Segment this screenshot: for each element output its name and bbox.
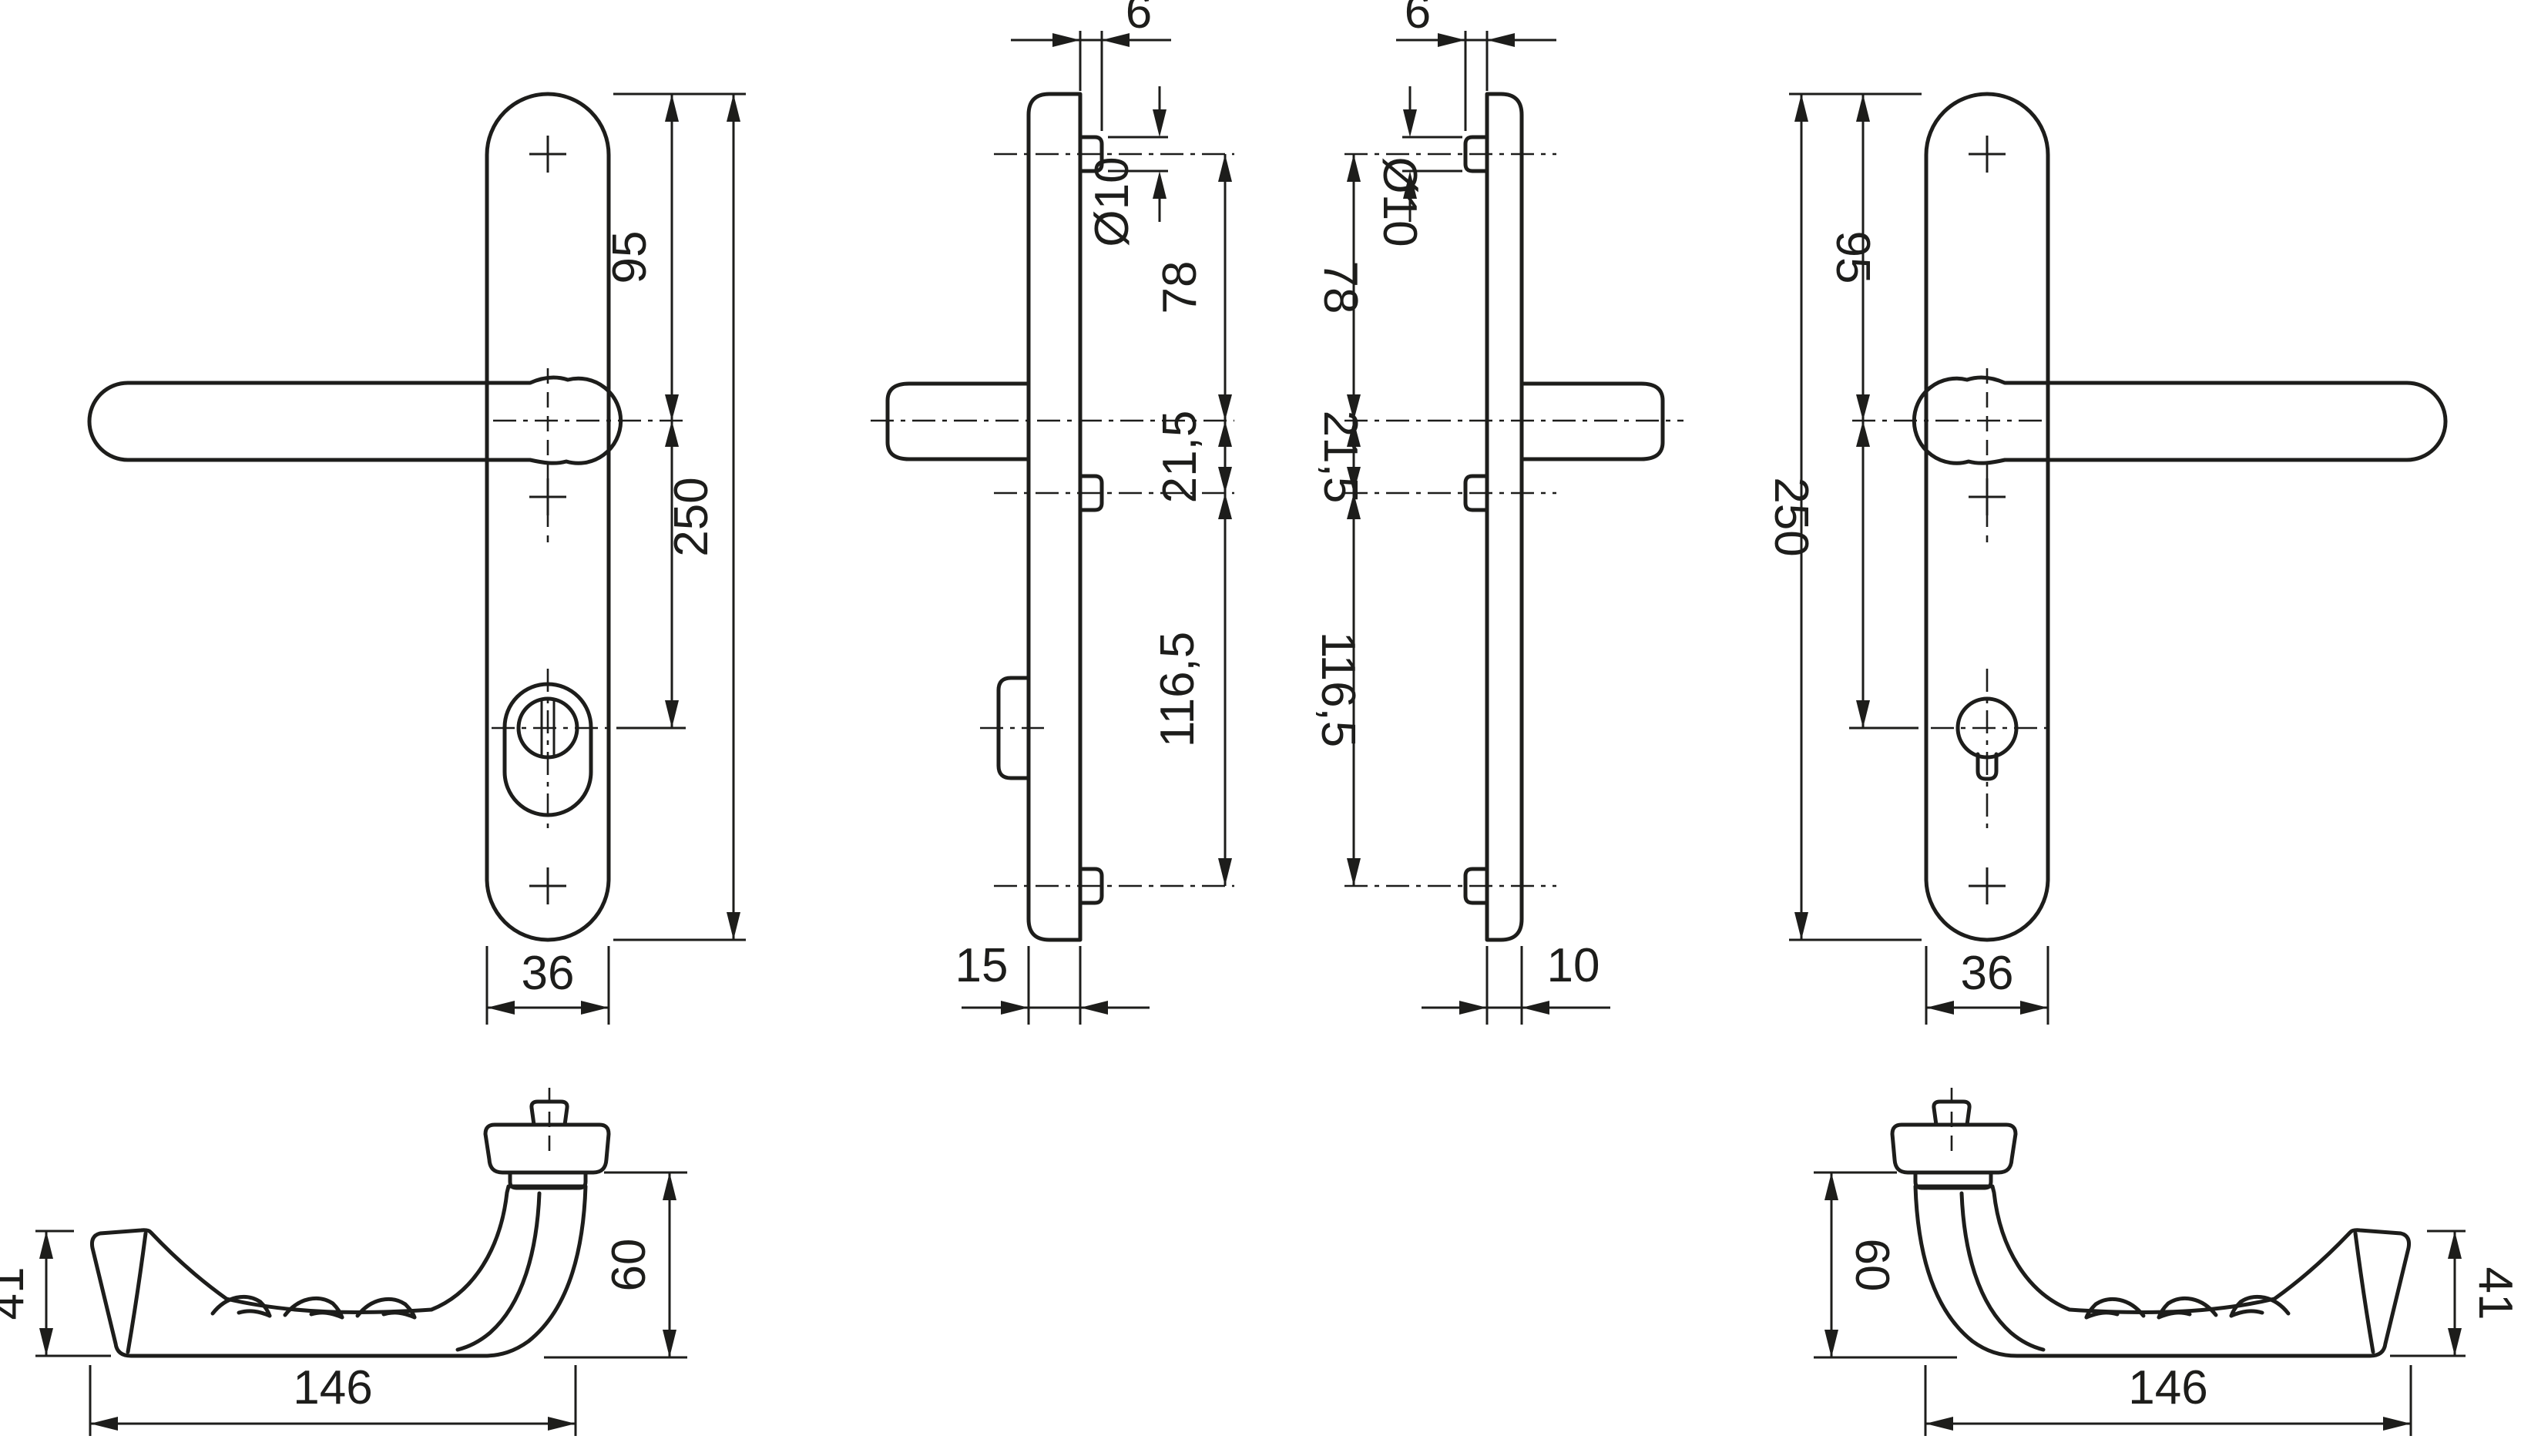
dim-60-label: 60 [1845,1239,1898,1292]
dim-10-label: 10 [1547,939,1600,992]
dim-6-graphics [1396,31,1556,131]
rose-cap [485,1125,609,1173]
dim-41-label: 41 [0,1267,34,1320]
dim-15-label: 15 [955,939,1009,992]
oval-cylinder [492,669,616,830]
view-side-15: 6 Ø10 78 21,5 116,5 15 [871,0,1234,1025]
neck-inner-line [458,1193,539,1350]
handle-grip-outline [92,1186,586,1356]
view-handle-left: 41 60 146 [0,1088,687,1436]
dim-95-label: 95 [603,231,656,284]
dim-146-label: 146 [293,1361,372,1414]
dim-dia10-label: Ø10 [1373,156,1426,247]
dim-116-5-label: 116,5 [1311,632,1365,748]
dim-36-label: 36 [522,947,575,1000]
plate-profile-10 [1487,94,1522,940]
plate-profile-15 [1029,94,1080,940]
drawing-page: 95 250 36 [0,0,2521,1456]
dim-dia10-label: Ø10 [1086,156,1139,247]
dim-116-5-label: 116,5 [1151,632,1204,748]
centerlines [1344,154,1683,886]
grip-scallops [213,1297,415,1317]
dim-6-label: 6 [1405,0,1431,39]
dim-78-label: 78 [1153,261,1207,314]
dim-6-graphics [1011,31,1171,131]
view-side-10: 6 Ø10 78 21,5 116,5 10 [1311,0,1683,1025]
fixing-lugs [1465,137,1487,903]
dim-21-5-label: 21,5 [1314,411,1367,504]
euro-profile-cylinder [1931,669,2056,830]
dim-95-label: 95 [1826,231,1879,284]
view-front-right: 95 250 36 [1764,94,2445,1025]
view-handle-right: 60 146 41 [1814,1088,2521,1436]
view-front-left: 95 250 36 [89,94,746,1025]
dim-60-label: 60 [603,1239,656,1292]
dim-21-5-label: 21,5 [1153,411,1207,504]
dim-250-label: 250 [1764,477,1818,556]
screw-mark-bottom [529,867,566,904]
fixing-lugs [1080,137,1102,903]
dim-78-label: 78 [1314,261,1367,314]
screw-mark-top [529,136,566,173]
dim-36-label: 36 [1961,947,2014,1000]
technical-drawing-canvas: 95 250 36 [0,0,2521,1456]
dim-146-label: 146 [2128,1361,2207,1414]
fixing-mark-mid [529,478,566,515]
grip-end-cap-line [128,1233,146,1352]
dim-6-label: 6 [1126,0,1152,39]
dim-250-label: 250 [665,477,718,556]
dim-41-label: 41 [2469,1267,2521,1320]
